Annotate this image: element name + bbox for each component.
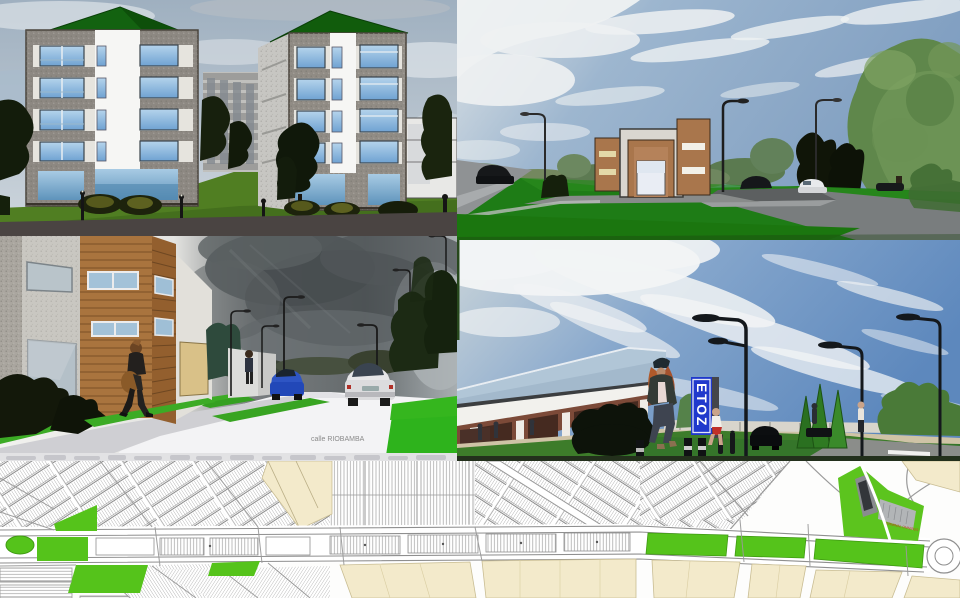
svg-text:calle RIOBAMBA: calle RIOBAMBA [311, 436, 365, 443]
svg-text:ETOZ: ETOZ [694, 383, 710, 427]
